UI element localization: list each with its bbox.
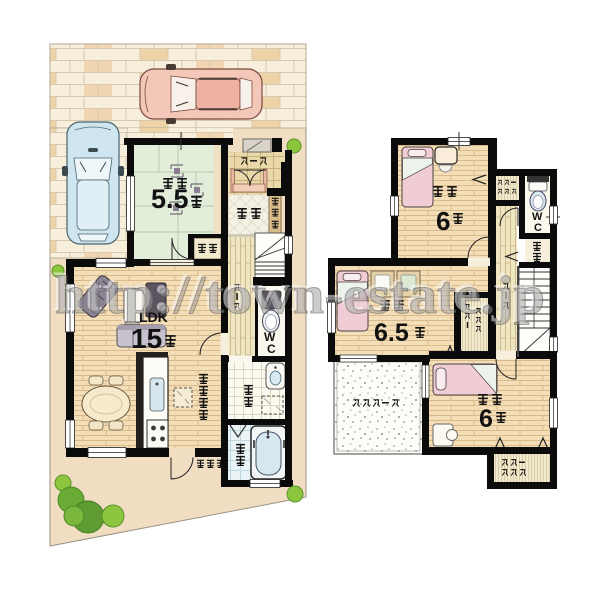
- svg-text:15: 15: [131, 323, 162, 354]
- svg-text:5.5: 5.5: [151, 184, 189, 214]
- svg-text:http://town-estate.jp: http://town-estate.jp: [55, 265, 545, 325]
- svg-text:C: C: [267, 342, 276, 356]
- svg-text:6: 6: [479, 405, 493, 433]
- svg-text:6: 6: [436, 206, 450, 236]
- svg-text:C: C: [534, 222, 542, 234]
